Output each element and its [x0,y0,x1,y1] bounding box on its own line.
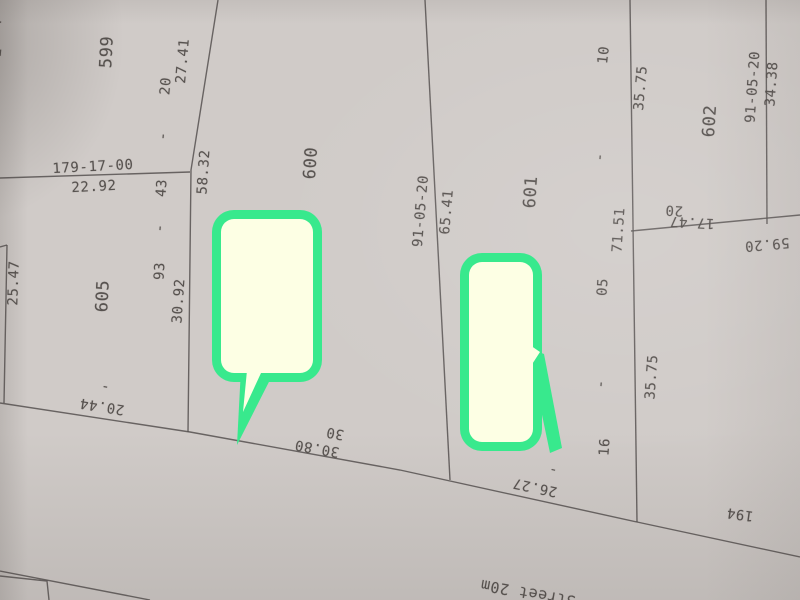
highlight-callout-2-fill [469,262,533,442]
plat-photo: 599600601602605194179-17-0022.9227.4120-… [0,0,800,600]
highlight-annotations [0,0,800,600]
highlight-callout-1[interactable] [212,210,322,445]
highlight-callout-2[interactable] [460,253,562,453]
highlight-callout-1-fill [221,219,313,373]
